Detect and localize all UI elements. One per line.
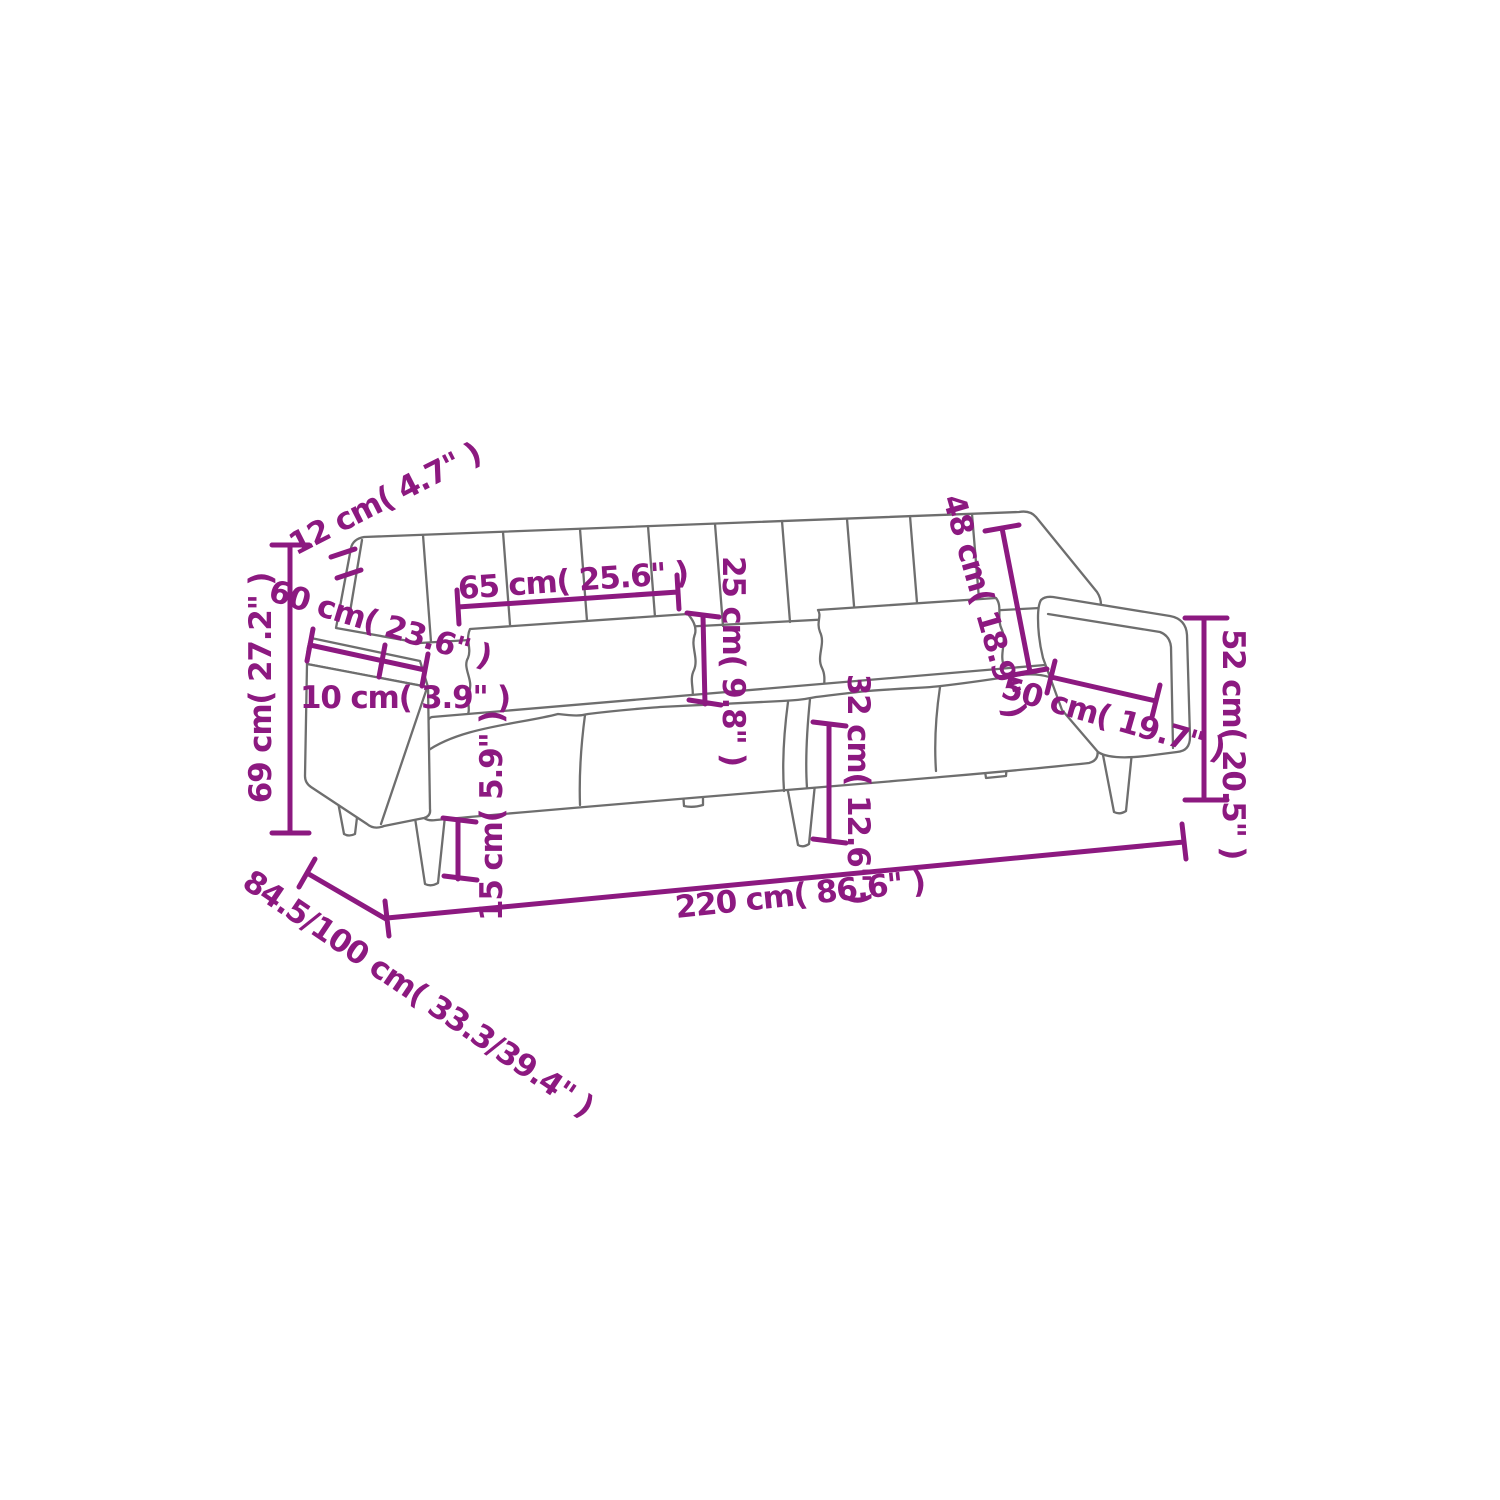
label-leg-height: 15 cm( 5.9" )	[474, 711, 510, 921]
label-back-cushion-height: 25 cm( 9.8" )	[715, 556, 751, 766]
sofa-leg-front-middle	[787, 784, 815, 846]
sofa-dimension-diagram: 12 cm( 4.7" ) 69 cm( 27.2" ) 60 cm( 23.6…	[0, 0, 1500, 1500]
label-overall-width: 220 cm( 86.6" )	[673, 864, 926, 926]
label-armrest-width: 10 cm( 3.9" )	[300, 680, 510, 716]
sofa-leg-front-left	[415, 816, 445, 885]
dim-line-leg-height	[443, 818, 477, 880]
sofa-leg-front-right	[1103, 752, 1132, 813]
diagram-canvas: 12 cm( 4.7" ) 69 cm( 27.2" ) 60 cm( 23.6…	[0, 0, 1500, 1500]
label-armrest-height: 52 cm( 20.5" )	[1215, 629, 1251, 859]
